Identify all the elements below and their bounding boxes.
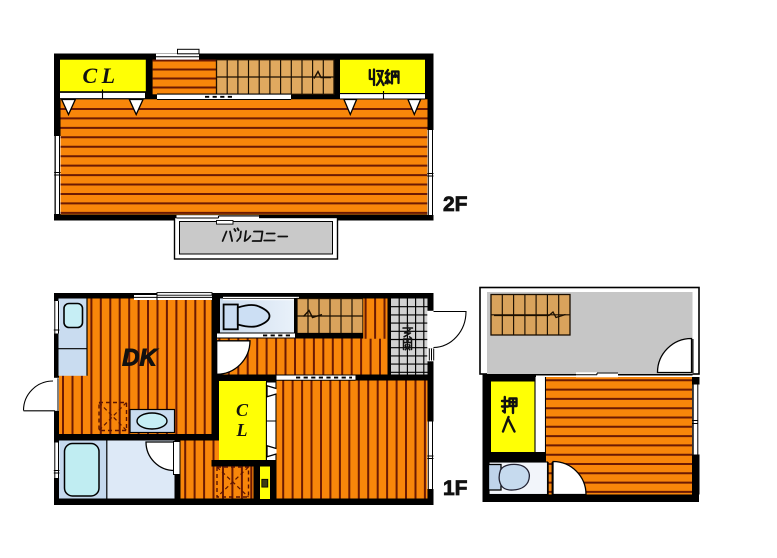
svg-text:C: C bbox=[236, 400, 249, 420]
svg-text:2F: 2F bbox=[443, 193, 468, 216]
svg-text:CL: CL bbox=[82, 63, 119, 88]
svg-text:L: L bbox=[236, 420, 248, 440]
svg-text:DK: DK bbox=[122, 345, 158, 372]
svg-text:1F: 1F bbox=[443, 477, 468, 500]
